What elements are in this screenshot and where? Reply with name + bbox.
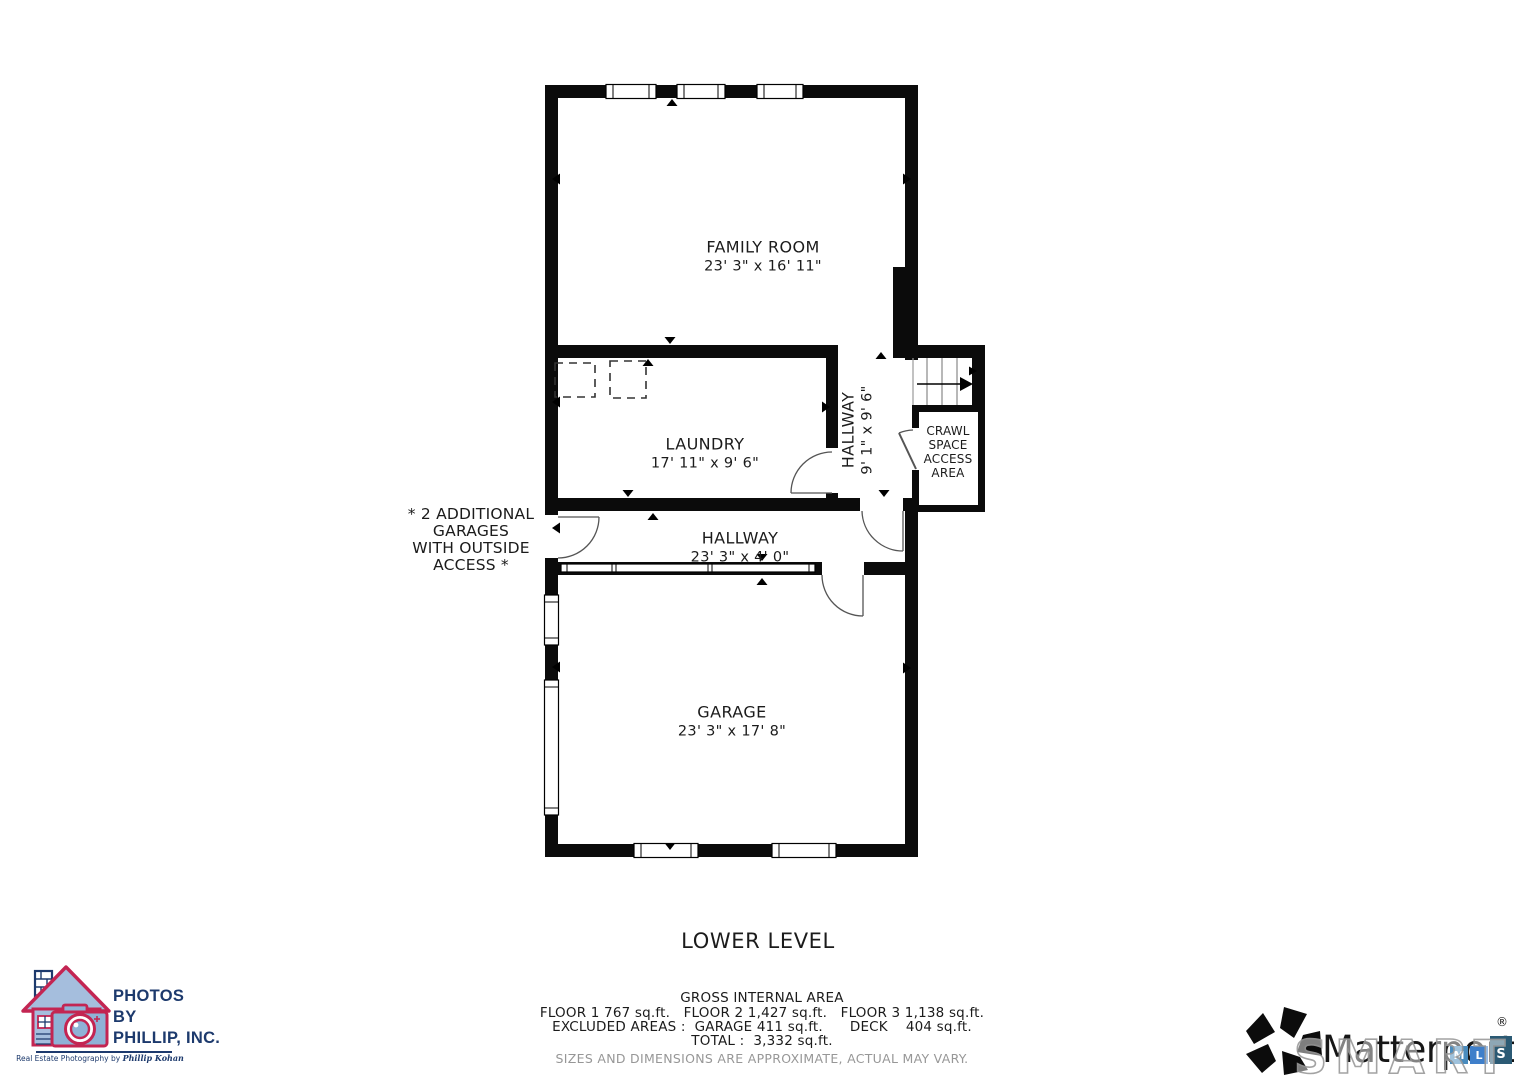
window-garage-bottom-1	[634, 844, 698, 858]
stairs	[913, 358, 977, 405]
window-garage-bottom-2	[772, 844, 836, 858]
laundry-label: LAUNDRY 17' 11" x 9' 6"	[651, 435, 759, 472]
room-dims: 23' 3" x 16' 11"	[704, 259, 822, 276]
room-name: HALLWAY	[691, 529, 790, 547]
smart-mls-logo: M L S SMART	[1294, 1030, 1513, 1080]
laundry-appliances	[555, 361, 646, 398]
crawl-space-label: CRAWL SPACE ACCESS AREA	[924, 424, 973, 480]
marker-down-icon	[665, 337, 676, 344]
room-name: LAUNDRY	[651, 435, 759, 453]
room-dims: 17' 11" x 9' 6"	[651, 456, 759, 473]
house-camera-icon	[23, 967, 109, 1046]
door-gap-upper-hallway	[860, 498, 903, 511]
wall-laundry-top	[545, 345, 838, 358]
footer-gross-internal-area: GROSS INTERNAL AREA	[680, 990, 843, 1006]
upper-hallway-label: HALLWAY 9' 1" x 9' 6"	[839, 385, 876, 474]
garage-label: GARAGE 23' 3" x 17' 8"	[678, 703, 786, 740]
photographer-name-line1: PHOTOS	[113, 987, 184, 1005]
marker-up-icon	[757, 578, 768, 585]
garages-annotation: * 2 ADDITIONAL GARAGES WITH OUTSIDE ACCE…	[408, 506, 534, 574]
photographer-name-line2: BY	[113, 1008, 137, 1026]
room-dims: 9' 1" x 9' 6"	[860, 385, 877, 474]
appliance-box-1	[555, 363, 595, 397]
photos-by-phillip-logo: PHOTOS BY PHILLIP, INC. Real Estate Phot…	[16, 967, 220, 1063]
wall-top	[545, 85, 918, 98]
marker-up-icon	[667, 99, 678, 106]
floor-plan-page: PHOTOS BY PHILLIP, INC. Real Estate Phot…	[0, 0, 1527, 1080]
marker-up-icon	[648, 513, 659, 520]
marker-up-icon	[876, 352, 887, 359]
marker-up-icon	[643, 359, 654, 366]
door-laundry	[791, 452, 832, 493]
marker-down-icon	[879, 490, 890, 497]
door-upper-hallway	[862, 511, 903, 551]
wall-stairs-top	[893, 345, 985, 358]
marker-down-icon	[623, 490, 634, 497]
door-gap-garage	[822, 562, 864, 575]
door-gap-exterior-left	[545, 515, 558, 558]
room-dims: 23' 3" x 17' 8"	[678, 724, 786, 741]
wall-right-lower	[905, 498, 918, 857]
wall-bottom	[545, 844, 918, 857]
room-dims: 23' 3" x 4' 0"	[691, 550, 790, 567]
window-garage-left-2	[545, 680, 559, 815]
wall-block-family-corner	[893, 267, 918, 358]
photographer-tagline: Real Estate Photography by Phillip Kohan	[16, 1053, 184, 1063]
matterport-logo: Matterport ® M L S SMART	[1246, 1007, 1514, 1080]
stairs-direction-arrow-icon	[960, 377, 973, 391]
photographer-name-line3: PHILLIP, INC.	[113, 1029, 220, 1047]
footer-disclaimer: SIZES AND DIMENSIONS ARE APPROXIMATE, AC…	[556, 1051, 969, 1066]
room-name: HALLWAY	[839, 385, 857, 474]
door-exterior-left	[558, 517, 599, 558]
family-room-label: FAMILY ROOM 23' 3" x 16' 11"	[704, 238, 822, 275]
lower-hallway-label: HALLWAY 23' 3" x 4' 0"	[691, 529, 790, 566]
door-garage	[822, 575, 863, 616]
smart-watermark: SMART	[1294, 1030, 1513, 1080]
level-title: LOWER LEVEL	[681, 929, 835, 953]
footer-total-area: TOTAL : 3,332 sq.ft.	[691, 1033, 832, 1049]
room-name: GARAGE	[678, 703, 786, 721]
registered-trademark-icon: ®	[1496, 1015, 1508, 1029]
room-name: FAMILY ROOM	[704, 238, 822, 256]
door-gap-laundry	[826, 448, 838, 493]
appliance-box-2	[610, 361, 646, 398]
